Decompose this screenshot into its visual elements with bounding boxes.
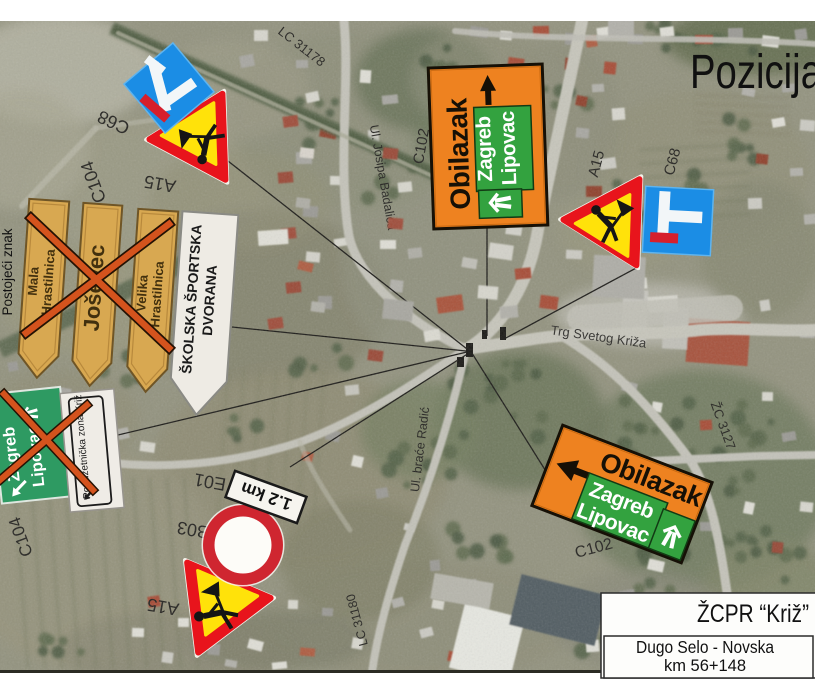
svg-text:Pozicija: Pozicija (690, 46, 815, 99)
svg-text:Obilazak: Obilazak (441, 97, 476, 210)
svg-text:Postojeći znak: Postojeći znak (0, 228, 15, 315)
svg-text:Zagreb: Zagreb (472, 116, 497, 182)
svg-text:Dugo Selo - Novska: Dugo Selo - Novska (636, 637, 774, 657)
svg-text:ŽCPR “Križ”: ŽCPR “Križ” (697, 599, 809, 628)
svg-text:km 56+148: km 56+148 (664, 657, 746, 675)
svg-text:Lipovac: Lipovac (496, 111, 522, 186)
